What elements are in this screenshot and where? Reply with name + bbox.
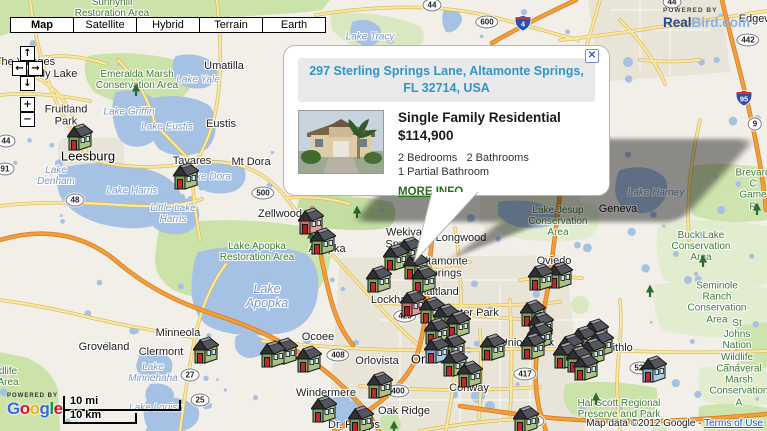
bathrooms: 2 Bathrooms <box>466 152 528 164</box>
property-marker[interactable] <box>367 370 393 400</box>
property-marker[interactable] <box>366 264 392 294</box>
info-window: ✕ 297 Sterling Springs Lane, Altamonte S… <box>283 45 610 196</box>
arrow-up-icon: ↑ <box>23 48 31 59</box>
google-wordmark: Google <box>7 400 63 417</box>
property-marker[interactable] <box>67 122 93 152</box>
bedrooms: 2 Bedrooms <box>398 152 457 164</box>
close-icon[interactable]: ✕ <box>585 49 599 63</box>
terms-of-use-link[interactable]: Terms of Use <box>704 418 763 429</box>
property-marker[interactable] <box>457 359 483 389</box>
realbird-logo[interactable]: POWERED BY RealBird.com <box>663 8 750 29</box>
house-marker-icon <box>296 344 322 374</box>
house-marker-icon <box>366 264 392 294</box>
google-logo[interactable]: POWERED BY Google <box>7 393 63 417</box>
pan-up-button[interactable]: ↑ <box>20 46 35 61</box>
map-type-button-satellite[interactable]: Satellite <box>73 17 137 33</box>
property-marker[interactable] <box>193 335 219 365</box>
map-type-button-hybrid[interactable]: Hybrid <box>136 17 200 33</box>
property-marker[interactable] <box>480 332 506 362</box>
scale-miles: 10 mi <box>70 395 98 407</box>
house-marker-icon <box>310 226 336 256</box>
map-attribution: Map data ©2012 Google - Terms of Use <box>586 418 763 429</box>
map-type-button-earth[interactable]: Earth <box>262 17 326 33</box>
map-application: The VillagesLady LakeUmatillaFruitland P… <box>0 0 767 431</box>
listing-facts: 2 Bedrooms 2 Bathrooms 1 Partial Bathroo… <box>398 151 561 180</box>
map-type-button-terrain[interactable]: Terrain <box>199 17 263 33</box>
house-marker-icon <box>513 404 539 431</box>
house-marker-icon <box>193 335 219 365</box>
listing-price: $114,900 <box>398 128 561 143</box>
listing-address: 297 Sterling Springs Lane, Altamonte Spr… <box>298 58 595 102</box>
property-marker[interactable] <box>641 354 667 384</box>
property-marker[interactable] <box>311 394 337 424</box>
house-marker-icon <box>520 331 546 361</box>
google-letter: e <box>54 399 63 418</box>
arrow-down-icon: ↓ <box>23 78 31 89</box>
listing-photo[interactable] <box>298 110 384 174</box>
zoom-out-button[interactable]: − <box>20 112 35 127</box>
pan-left-button[interactable]: ← <box>12 61 27 76</box>
house-marker-icon <box>641 354 667 384</box>
house-marker-icon <box>480 332 506 362</box>
property-marker[interactable] <box>520 331 546 361</box>
house-marker-icon <box>457 359 483 389</box>
scale-km: 10 km <box>70 409 101 421</box>
map-type-bar: MapSatelliteHybridTerrainEarth <box>10 17 326 33</box>
house-marker-icon <box>367 370 393 400</box>
zoom-in-button[interactable]: + <box>20 97 35 112</box>
property-marker[interactable] <box>528 262 554 292</box>
map-type-button-map[interactable]: Map <box>10 17 74 33</box>
google-letter: g <box>40 399 50 418</box>
house-marker-icon <box>311 394 337 424</box>
property-marker[interactable] <box>260 339 286 369</box>
scale-bar: 10 mi 10 km <box>63 396 185 426</box>
property-marker[interactable] <box>173 161 199 191</box>
house-marker-icon <box>173 161 199 191</box>
property-marker[interactable] <box>513 404 539 431</box>
google-letter: G <box>7 399 20 418</box>
house-marker-icon <box>67 122 93 152</box>
property-type: Single Family Residential <box>398 110 561 127</box>
google-letter: o <box>20 399 30 418</box>
property-marker[interactable] <box>348 404 374 431</box>
minus-icon: − <box>23 114 31 125</box>
arrow-right-icon: → <box>31 63 39 74</box>
pan-right-button[interactable]: → <box>28 61 43 76</box>
property-marker[interactable] <box>573 352 599 382</box>
house-marker-icon <box>528 262 554 292</box>
attribution-text: Map data ©2012 Google - <box>586 418 704 429</box>
realbird-wordmark: RealBird.com <box>663 16 750 30</box>
house-photo-illustration <box>299 111 383 173</box>
more-info-link[interactable]: MORE INFO <box>398 186 463 198</box>
arrow-left-icon: ← <box>15 63 23 74</box>
google-letter: o <box>30 399 40 418</box>
property-marker[interactable] <box>310 226 336 256</box>
property-marker[interactable] <box>296 344 322 374</box>
pan-down-button[interactable]: ↓ <box>20 76 35 91</box>
house-marker-icon <box>260 339 286 369</box>
house-marker-icon <box>348 404 374 431</box>
plus-icon: + <box>23 99 31 110</box>
listing-details: Single Family Residential $114,900 2 Bed… <box>398 110 561 200</box>
partial-bathrooms: 1 Partial Bathroom <box>398 166 489 178</box>
house-marker-icon <box>573 352 599 382</box>
